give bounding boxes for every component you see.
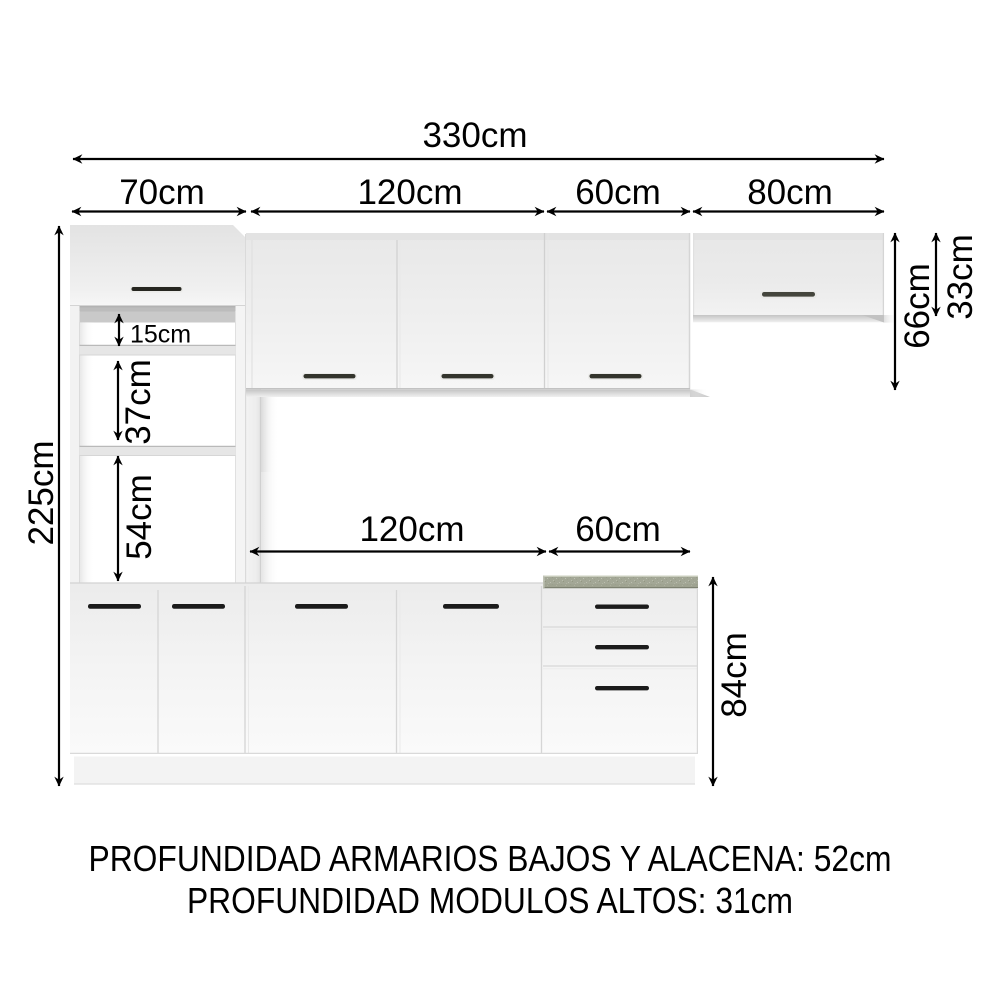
svg-text:33cm: 33cm — [941, 234, 980, 320]
svg-text:54cm: 54cm — [120, 474, 159, 560]
svg-text:PROFUNDIDAD ARMARIOS BAJOS Y A: PROFUNDIDAD ARMARIOS BAJOS Y ALACENA: 52… — [89, 838, 892, 879]
svg-text:225cm: 225cm — [22, 440, 61, 545]
svg-text:70cm: 70cm — [119, 173, 205, 212]
svg-text:15cm: 15cm — [130, 321, 191, 349]
svg-text:80cm: 80cm — [747, 173, 833, 212]
svg-text:120cm: 120cm — [357, 173, 462, 212]
svg-text:37cm: 37cm — [119, 359, 158, 445]
svg-text:PROFUNDIDAD MODULOS ALTOS: 31c: PROFUNDIDAD MODULOS ALTOS: 31cm — [187, 880, 793, 921]
svg-text:60cm: 60cm — [575, 510, 661, 549]
svg-text:84cm: 84cm — [715, 632, 754, 718]
svg-text:60cm: 60cm — [575, 173, 661, 212]
svg-text:330cm: 330cm — [422, 116, 527, 155]
svg-text:120cm: 120cm — [359, 510, 464, 549]
svg-text:66cm: 66cm — [898, 263, 937, 349]
